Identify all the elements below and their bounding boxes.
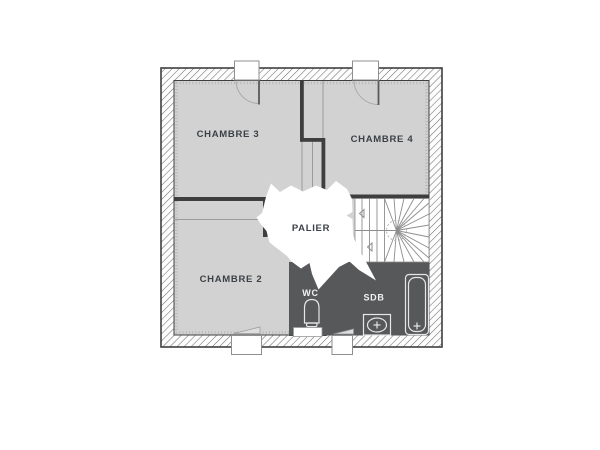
window-wc xyxy=(294,328,323,337)
floor-plan: CHAMBRE 3 CHAMBRE 4 CHAMBRE 2 PALIER WC … xyxy=(0,0,600,450)
label-chambre2: CHAMBRE 2 xyxy=(200,274,263,285)
label-chambre4: CHAMBRE 4 xyxy=(351,134,414,145)
label-sdb: SDB xyxy=(363,293,384,303)
label-wc: WC xyxy=(302,288,318,298)
label-chambre3: CHAMBRE 3 xyxy=(197,129,260,140)
staircase xyxy=(355,199,429,263)
floor-plan-page: CHAMBRE 3 CHAMBRE 4 CHAMBRE 2 PALIER WC … xyxy=(0,0,600,450)
label-palier: PALIER xyxy=(292,223,330,234)
